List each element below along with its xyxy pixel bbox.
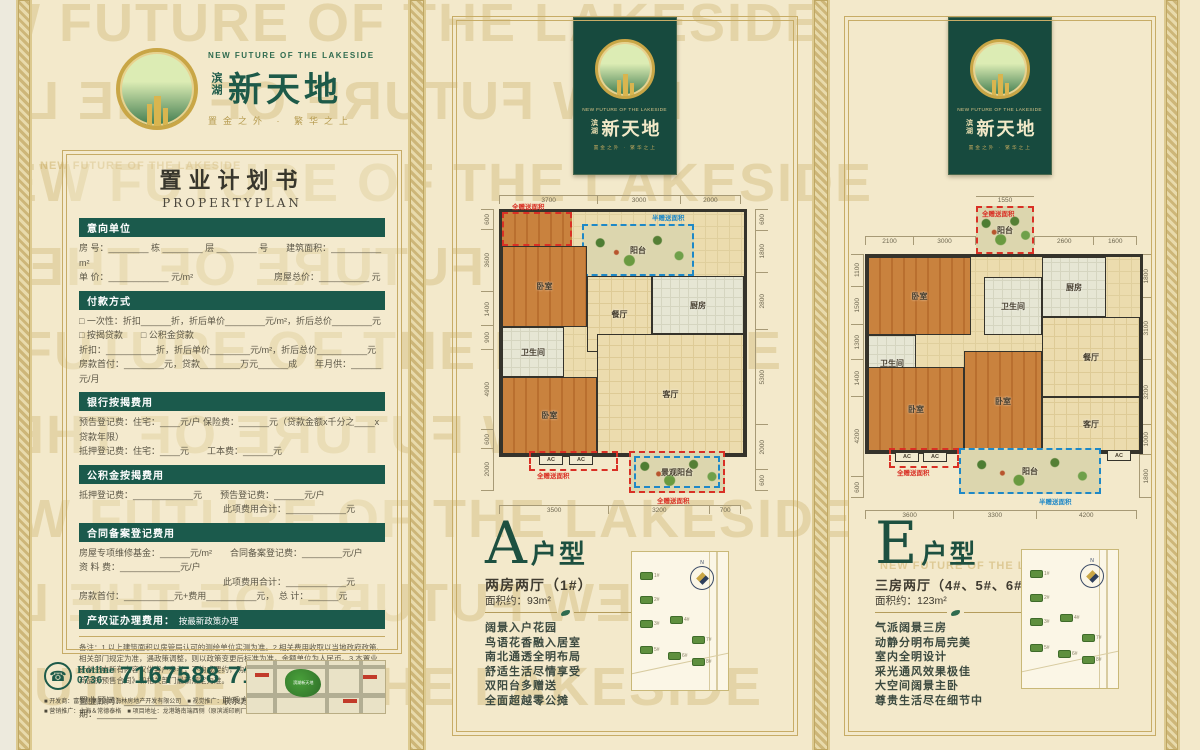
brand-prefix: 滨湖 [964,119,974,137]
dimension-label: 600 [755,469,768,491]
room-bedroom: 卧室 [502,377,597,454]
dimension-label: 3600 [481,229,494,292]
building-footprint-icon [640,620,653,628]
building-glyph [154,96,161,126]
brand-tagline-en: NEW FUTURE OF THE LAKESIDE [583,107,668,113]
dimension-label: 1100 [851,254,864,286]
dimension-label: 1600 [1093,236,1137,245]
ornamental-border [1164,0,1180,750]
dimension-label: 5300 [755,329,768,424]
building-glyph [630,83,634,96]
leaf-ornament-icon [951,610,960,616]
dimension-label: 1500 [851,286,864,324]
dimension-label: 3200 [608,505,709,514]
site-plan: N 1#2#3#4#5#6#7#8# [631,551,729,691]
form-sections: 意向单位 房 号：________ 栋 ________ 层 ________ … [79,218,385,629]
site-building: 5# [640,646,660,654]
brand-name: 新天地 [228,62,342,111]
dimension-label: 2100 [865,236,913,245]
room-bedroom: 卧室 [964,351,1042,451]
form-row: 房屋专项维修基金：______元/m² 合同备案登记费：________元/户 [79,546,385,561]
room-balcony-north: 阳台 [582,224,694,276]
feature-line: 舒适生活尽情享受 [485,665,581,680]
site-building: 1# [640,572,660,580]
floor-plan-a: 370030002000 6003600140090049006002000 6… [469,189,781,524]
brand-name: 新天地 [602,115,662,141]
brand-tagline-cn: 置金之外 · 繁华之上 [968,144,1031,151]
building-footprint-icon [640,646,653,654]
location-map: 滨湖新天地 [246,660,386,714]
dimension-label: 900 [481,325,494,349]
form-row: 此项费用合计：____________元 [79,575,385,590]
form-row: 房 号：________ 栋 ________ 层 ________ 号 建筑面… [79,241,385,270]
ornament-divider [485,609,645,616]
form-row: 资 料 费：____________元/户 [79,560,385,575]
form-section: 意向单位 房 号：________ 栋 ________ 层 ________ … [79,218,385,285]
site-building: 2# [640,596,660,604]
panel-property-plan: NEW FUTURE OF THE LAKESIDE 滨湖 新天地 置金之外 ·… [16,0,408,750]
dimension-label: 2800 [755,272,768,329]
dimension-label: 2000 [755,424,768,469]
building-glyph [998,74,1003,96]
ac-unit: AC [923,452,947,462]
feature-line: 大空间阔景主卧 [875,679,983,694]
dimension-label: 1550 [976,196,1034,204]
form-section: 合同备案登记费用 房屋专项维修基金：______元/m² 合同备案登记费：___… [79,523,385,604]
unit-features: 阔景入户花园鸟语花香融入居室南北通透全明布局舒适生活尽情享受双阳台多赠送全面超越… [485,621,581,708]
floor-plan-e: 1550 阳台 全赠送面积 21003000 26001600 11001500… [849,196,1151,531]
brand-prefix: 滨湖 [208,72,224,102]
ac-platform: AC AC [889,448,959,468]
dimension-label: 700 [709,505,741,514]
ac-platform: AC AC [529,451,618,471]
site-building: 8# [1082,656,1102,664]
map-label-chip [343,699,357,703]
form-section: 产权证办理费用： 按最新政策办理 [79,610,385,629]
site-building: 1# [1030,570,1050,578]
room-entry-garden [502,212,572,246]
dimension-label: 4200 [851,396,864,476]
feature-line: 动静分明布局完美 [875,636,983,651]
section-header: 付款方式 [79,291,385,310]
dimension-label: 3000 [913,236,976,245]
unit-title: E 户型 [875,517,977,571]
site-building: 5# [1030,644,1050,652]
half-gift-tag: 半赠送面积 [1039,496,1072,506]
dimension-label: 2000 [680,195,741,204]
full-gift-tag: 全赠送面积 [537,470,570,480]
dimension-chain-right: 6001800280053002000600 [755,209,768,491]
dimension-label: 600 [755,209,768,230]
section-header: 合同备案登记费用 [79,523,385,542]
map-label-chip [255,673,269,677]
building-footprint-icon [668,652,681,660]
brochure-canvas: NEW FUTURE OF THE LAKESIDE NEW FUTURE OF… [0,0,1200,750]
form-row: 抵押登记费：住宅：____元 工本费：______元 [79,444,385,459]
map-label-chip [363,675,377,679]
room-bedroom: 卧室 [502,246,587,327]
feature-line: 双阳台多赠送 [485,679,581,694]
full-gift-tag: 全赠送面积 [897,467,930,477]
form-section: 银行按揭费用 预告登记费：住宅：____元/户 保险费：______元（贷款金额… [79,392,385,459]
map-road [247,665,385,669]
room-balcony-south: 阳台 [959,448,1101,494]
panel-unit-e: NEW FUTURE OF THE LAKESIDE 滨湖 新天地 置金之外 ·… [844,16,1156,736]
section-header: 产权证办理费用： 按最新政策办理 [79,610,385,629]
plan-body: 卧室 卫生间 厨房 餐厅 卫生间 卧室 卧室 [865,254,1143,454]
footer-credits: ■ 开发商：富黎登集团湖南海林房地产开发有限公司 ■ 视觉推广：中世锐意■ 营销… [44,697,254,717]
brand-tagline-en: NEW FUTURE OF THE LAKESIDE [958,107,1043,113]
feature-line: 阔景入户花园 [485,621,581,636]
building-footprint-icon [1082,656,1095,664]
building-glyph [163,108,168,126]
dimension-chain-top-right: 26001600 [1034,236,1137,245]
dimension-chain-left: 6003600140090049006002000 [481,209,494,491]
feature-line: 尊贵生活尽在细节中 [875,694,983,709]
unit-area: 面积约：123m² [875,593,947,608]
hotline-area-code: 0736 [77,676,115,685]
form-row: 单 价：____________ 元/m² 房屋总价：__________ 元 [79,270,385,285]
brand-emblem-icon [970,39,1030,99]
section-header: 公积金按揭费用 [79,465,385,484]
credit-line: ■ 开发商：富黎登集团湖南海林房地产开发有限公司 ■ 视觉推广：中世锐意 [44,697,254,707]
site-building: 8# [692,658,712,666]
site-building: 3# [640,620,660,628]
page-margin [0,0,16,750]
dimension-label: 600 [481,209,494,229]
site-building: 6# [1058,650,1078,658]
unit-area: 面积约：93m² [485,593,551,608]
building-footprint-icon [1030,594,1043,602]
building-footprint-icon [692,658,705,666]
room-kitchen: 厨房 [1042,257,1106,317]
room-bedroom: 卧室 [868,367,964,451]
brand-tagline-en: NEW FUTURE OF THE LAKESIDE [208,51,375,60]
feature-line: 鸟语花香融入居室 [485,636,581,651]
dimension-label: 600 [481,429,494,449]
dimension-label: 2000 [481,448,494,491]
credit-line: ■ 营销推广：上海＆常德泰格 ■ 项目地址：龙港路南端西侧（原滨湖印刷厂） [44,707,254,717]
room-view-balcony: 景观阳台 [629,451,725,493]
form-title: 置业计划书 [79,163,385,195]
feature-line: 全面超越零公摊 [485,694,581,709]
building-footprint-icon [1058,650,1071,658]
plan-body: 全赠送面积 阳台 半赠送面积 卧室 餐厅 厨房 卫生间 卧室 [499,209,747,457]
form-section: 公积金按揭费用 抵押登记费：____________元 预告登记费：______… [79,465,385,517]
phone-icon: ☎ [44,662,72,690]
brand-tagline-cn: 置金之外 · 繁华之上 [208,114,375,127]
building-footprint-icon [1030,618,1043,626]
feature-line: 室内全明设计 [875,650,983,665]
room-dining: 餐厅 [1042,317,1140,397]
ac-unit: AC [895,452,919,462]
building-footprint-icon [692,636,705,644]
dimension-label: 4200 [1036,510,1137,519]
brand-wordmark: NEW FUTURE OF THE LAKESIDE 滨湖 新天地 置金之外 ·… [208,51,375,127]
dimension-label: 1400 [481,291,494,325]
form-row: □ 按揭贷款 □ 公积金贷款 [79,328,385,343]
building-glyph [992,80,996,96]
panel-unit-a: NEW FUTURE OF THE LAKESIDE 滨湖 新天地 置金之外 ·… [452,16,798,736]
building-glyph [617,80,621,96]
building-footprint-icon [1030,570,1043,578]
map-road [325,661,329,713]
brand-tagline-cn: 置金之外 · 繁华之上 [593,144,656,151]
property-plan-form: 置业计划书 PROPERTYPLAN 意向单位 房 号：________ 栋 _… [62,150,402,654]
brand-banner: NEW FUTURE OF THE LAKESIDE 滨湖 新天地 置金之外 ·… [573,17,677,175]
dimension-label: 1400 [851,359,864,396]
building-footprint-icon [670,616,683,624]
dimension-label: 4900 [481,349,494,429]
building-glyph [1005,83,1009,96]
form-row: 预告登记费：住宅：____元/户 保险费：______元（贷款金额x千分之___… [79,415,385,444]
building-footprint-icon [640,572,653,580]
room-kitchen: 厨房 [652,276,744,334]
room-bathroom: 卫生间 [502,327,564,377]
site-building: 2# [1030,594,1050,602]
ornamental-border [812,0,830,750]
dimension-label: 600 [851,476,864,498]
ac-unit: AC [569,455,593,465]
ornamental-border [408,0,426,750]
dimension-label: 1800 [755,230,768,272]
site-building: 4# [1060,614,1080,622]
full-gift-tag: 全赠送面积 [982,208,1015,218]
form-row: □ 一次性：折扣______折，折后单价________元/m²，折后总价___… [79,314,385,329]
form-row: 房款首付：__________元+费用__________元， 总 计：____… [79,589,385,604]
leaf-ornament-icon [561,610,570,616]
dimension-label: 1300 [851,324,864,359]
room-bedroom: 卧室 [868,257,971,335]
unit-features: 气派阔景三房动静分明布局完美室内全明设计采光通风效果极佳大空间阔景主卧尊贵生活尽… [875,621,983,708]
site-building: 4# [670,616,690,624]
brand-banner: NEW FUTURE OF THE LAKESIDE 滨湖 新天地 置金之外 ·… [948,17,1052,175]
room-living: 客厅 [1042,397,1140,451]
form-row: 抵押登记费：____________元 预告登记费：______元/户 [79,488,385,503]
brand-logo: NEW FUTURE OF THE LAKESIDE 滨湖 新天地 置金之外 ·… [116,48,375,130]
building-footprint-icon [1030,644,1043,652]
feature-line: 采光通风效果极佳 [875,665,983,680]
half-gift-tag: 半赠送面积 [652,212,685,222]
ac-unit: AC [539,455,563,465]
dimension-chain-top-left: 21003000 [865,236,976,245]
form-row: 房款首付：________元，贷款________万元______成 年月供：_… [79,357,385,386]
form-title-en: PROPERTYPLAN [79,196,385,210]
form-row: 折扣：__________折，折后单价________元/m²，折后总价____… [79,343,385,358]
unit-letter: E [875,517,917,569]
site-building: 7# [692,636,712,644]
building-footprint-icon [640,596,653,604]
dimension-label: 1800 [1139,454,1152,498]
form-section: 付款方式 □ 一次性：折扣______折，折后单价________元/m²，折后… [79,291,385,387]
room-living: 客厅 [597,334,744,454]
feature-line: 南北通透全明布局 [485,650,581,665]
brand-emblem-icon [595,39,655,99]
site-building: 7# [1082,634,1102,642]
form-row: 此项费用合计：____________元 [79,502,385,517]
section-header: 意向单位 [79,218,385,237]
building-glyph [147,104,152,126]
ac-unit: AC [1107,450,1131,461]
map-site-label: 滨湖新天地 [293,680,313,685]
full-gift-tag: 全赠送面积 [512,201,545,211]
dimension-label: 2600 [1034,236,1093,245]
map-road [273,661,277,713]
building-footprint-icon [1082,634,1095,642]
site-plan: N 1#2#3#4#5#6#7#8# [1021,549,1119,689]
unit-letter: A [485,517,527,569]
brand-emblem-icon [116,48,198,130]
brand-prefix: 滨湖 [589,119,599,137]
dimension-label: 3000 [597,195,680,204]
unit-title: A 户型 [485,517,587,571]
brand-name: 新天地 [977,115,1037,141]
unit-suffix: 户型 [531,534,587,571]
room-bathroom: 卫生间 [984,277,1042,335]
full-gift-tag: 全赠送面积 [657,495,690,505]
ornament-divider [875,609,1035,616]
feature-line: 气派阔景三房 [875,621,983,636]
building-glyph [623,74,628,96]
unit-suffix: 户型 [921,534,977,571]
section-header: 银行按揭费用 [79,392,385,411]
map-road [247,693,385,698]
site-building: 3# [1030,618,1050,626]
dimension-chain-bottom: 35003200700 [499,505,741,514]
dimension-chain-left: 11001500130014004200600 [851,254,864,498]
map-site-marker: 滨湖新天地 [285,669,321,697]
unit-subtitle: 两房两厅（1#） [485,575,593,595]
map-road [359,661,363,713]
site-building: 6# [668,652,688,660]
building-footprint-icon [1060,614,1073,622]
